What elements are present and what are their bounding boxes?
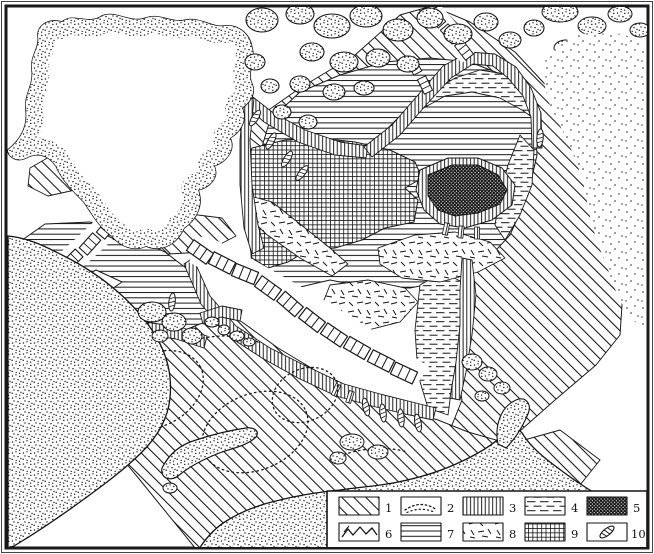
legend-num-10: 10	[631, 527, 646, 541]
legend-swatch-dense-checker	[587, 497, 627, 515]
legend: 1 2 3 4 5 6 7 8	[327, 491, 647, 548]
legend-swatch-diagonal-hatch	[339, 497, 379, 515]
legend-num-9: 9	[571, 527, 578, 541]
legend-swatch-grid	[525, 523, 565, 541]
legend-swatch-hatched-lens	[587, 523, 627, 541]
legend-num-1: 1	[385, 501, 392, 515]
legend-num-4: 4	[571, 501, 578, 515]
legend-num-7: 7	[447, 527, 454, 541]
legend-num-3: 3	[509, 501, 516, 515]
legend-swatch-dotted-contour	[401, 497, 441, 515]
legend-swatch-horizontal-dashes	[525, 497, 565, 515]
legend-swatch-random-dashes	[463, 523, 503, 541]
legend-num-2: 2	[447, 501, 454, 515]
legend-num-8: 8	[509, 527, 516, 541]
legend-num-5: 5	[633, 501, 640, 515]
map-canvas: 1 2 3 4 5 6 7 8	[0, 0, 654, 554]
land-nz-south	[163, 483, 177, 493]
arctic-tectonic-map: 1 2 3 4 5 6 7 8	[0, 0, 654, 554]
legend-num-6: 6	[385, 527, 392, 541]
legend-swatch-zigzag	[339, 523, 379, 541]
legend-swatch-horizontal-lines	[401, 523, 441, 541]
legend-swatch-vertical-lines	[463, 497, 503, 515]
